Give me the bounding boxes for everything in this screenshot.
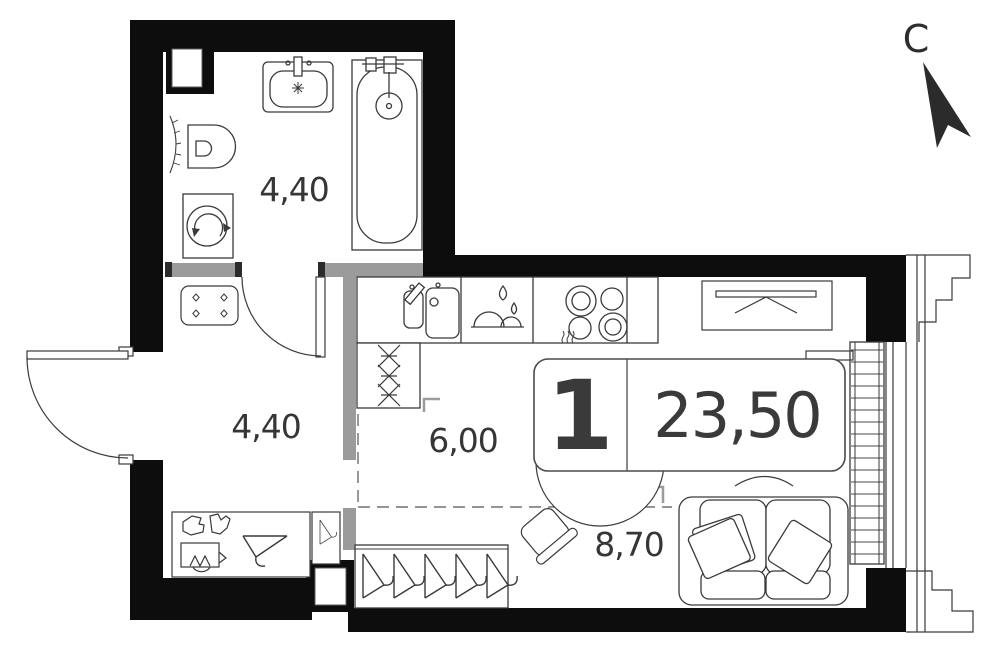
- washing-machine-icon: [183, 194, 233, 258]
- hallway-area-label: 4,40: [231, 407, 300, 446]
- hanger-wardrobe: [355, 545, 517, 608]
- toilet-icon: [188, 125, 236, 168]
- apartment-badge: 1 23,50: [534, 359, 845, 472]
- north-arrow-icon: [923, 62, 971, 148]
- bathroom-door-leaf: [316, 277, 325, 357]
- floor-plan: 1 23,50 4,40 4,40 6,00 8,70 С: [0, 0, 1001, 660]
- entrance-door-leaf: [27, 351, 128, 359]
- badge-total-area: 23,50: [653, 379, 821, 452]
- kitchen-area-label: 6,00: [428, 421, 497, 460]
- entrance-door-swing: [27, 357, 128, 458]
- closet: [702, 281, 832, 330]
- north-label: С: [903, 17, 930, 61]
- chair-back-arc: [735, 477, 793, 487]
- wash-basin-icon: [263, 57, 333, 112]
- towel-rail-icon: [170, 116, 181, 173]
- vent-shaft: [306, 560, 354, 612]
- living-room-area-label: 8,70: [594, 525, 663, 564]
- badge-rooms-count: 1: [547, 360, 612, 472]
- north-indicator: С: [903, 17, 971, 148]
- bathroom-door: [242, 277, 325, 357]
- bathtub-icon: [352, 57, 422, 250]
- entry-bench: [181, 286, 238, 325]
- entrance-door: [27, 347, 133, 464]
- balcony-steps-bottom: [906, 571, 973, 632]
- floor-plan-drawing: 1 23,50 4,40 4,40 6,00 8,70 С: [0, 0, 1001, 660]
- tall-cabinet-icon: [357, 343, 420, 408]
- bathroom-duct: [166, 42, 214, 94]
- sofa: [679, 497, 848, 605]
- entry-cabinet-small: [312, 512, 340, 564]
- balcony-steps-top: [906, 255, 970, 342]
- bathroom-door-swing: [242, 277, 321, 356]
- radiator: [850, 342, 884, 564]
- bathroom-area-label: 4,40: [259, 170, 328, 209]
